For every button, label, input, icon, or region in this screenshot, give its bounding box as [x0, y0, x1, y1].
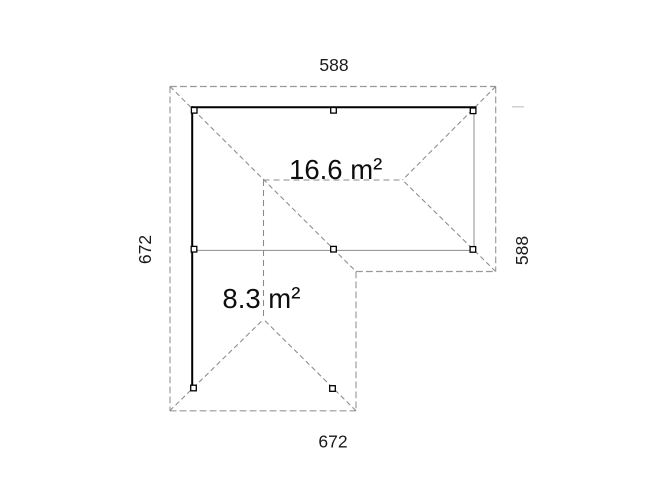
svg-text:16.6 m²: 16.6 m²	[289, 152, 382, 185]
svg-text:672: 672	[318, 431, 347, 451]
svg-text:8.3 m²: 8.3 m²	[222, 281, 300, 314]
svg-text:672: 672	[135, 235, 155, 264]
svg-text:588: 588	[319, 55, 348, 75]
svg-text:588: 588	[512, 236, 532, 265]
